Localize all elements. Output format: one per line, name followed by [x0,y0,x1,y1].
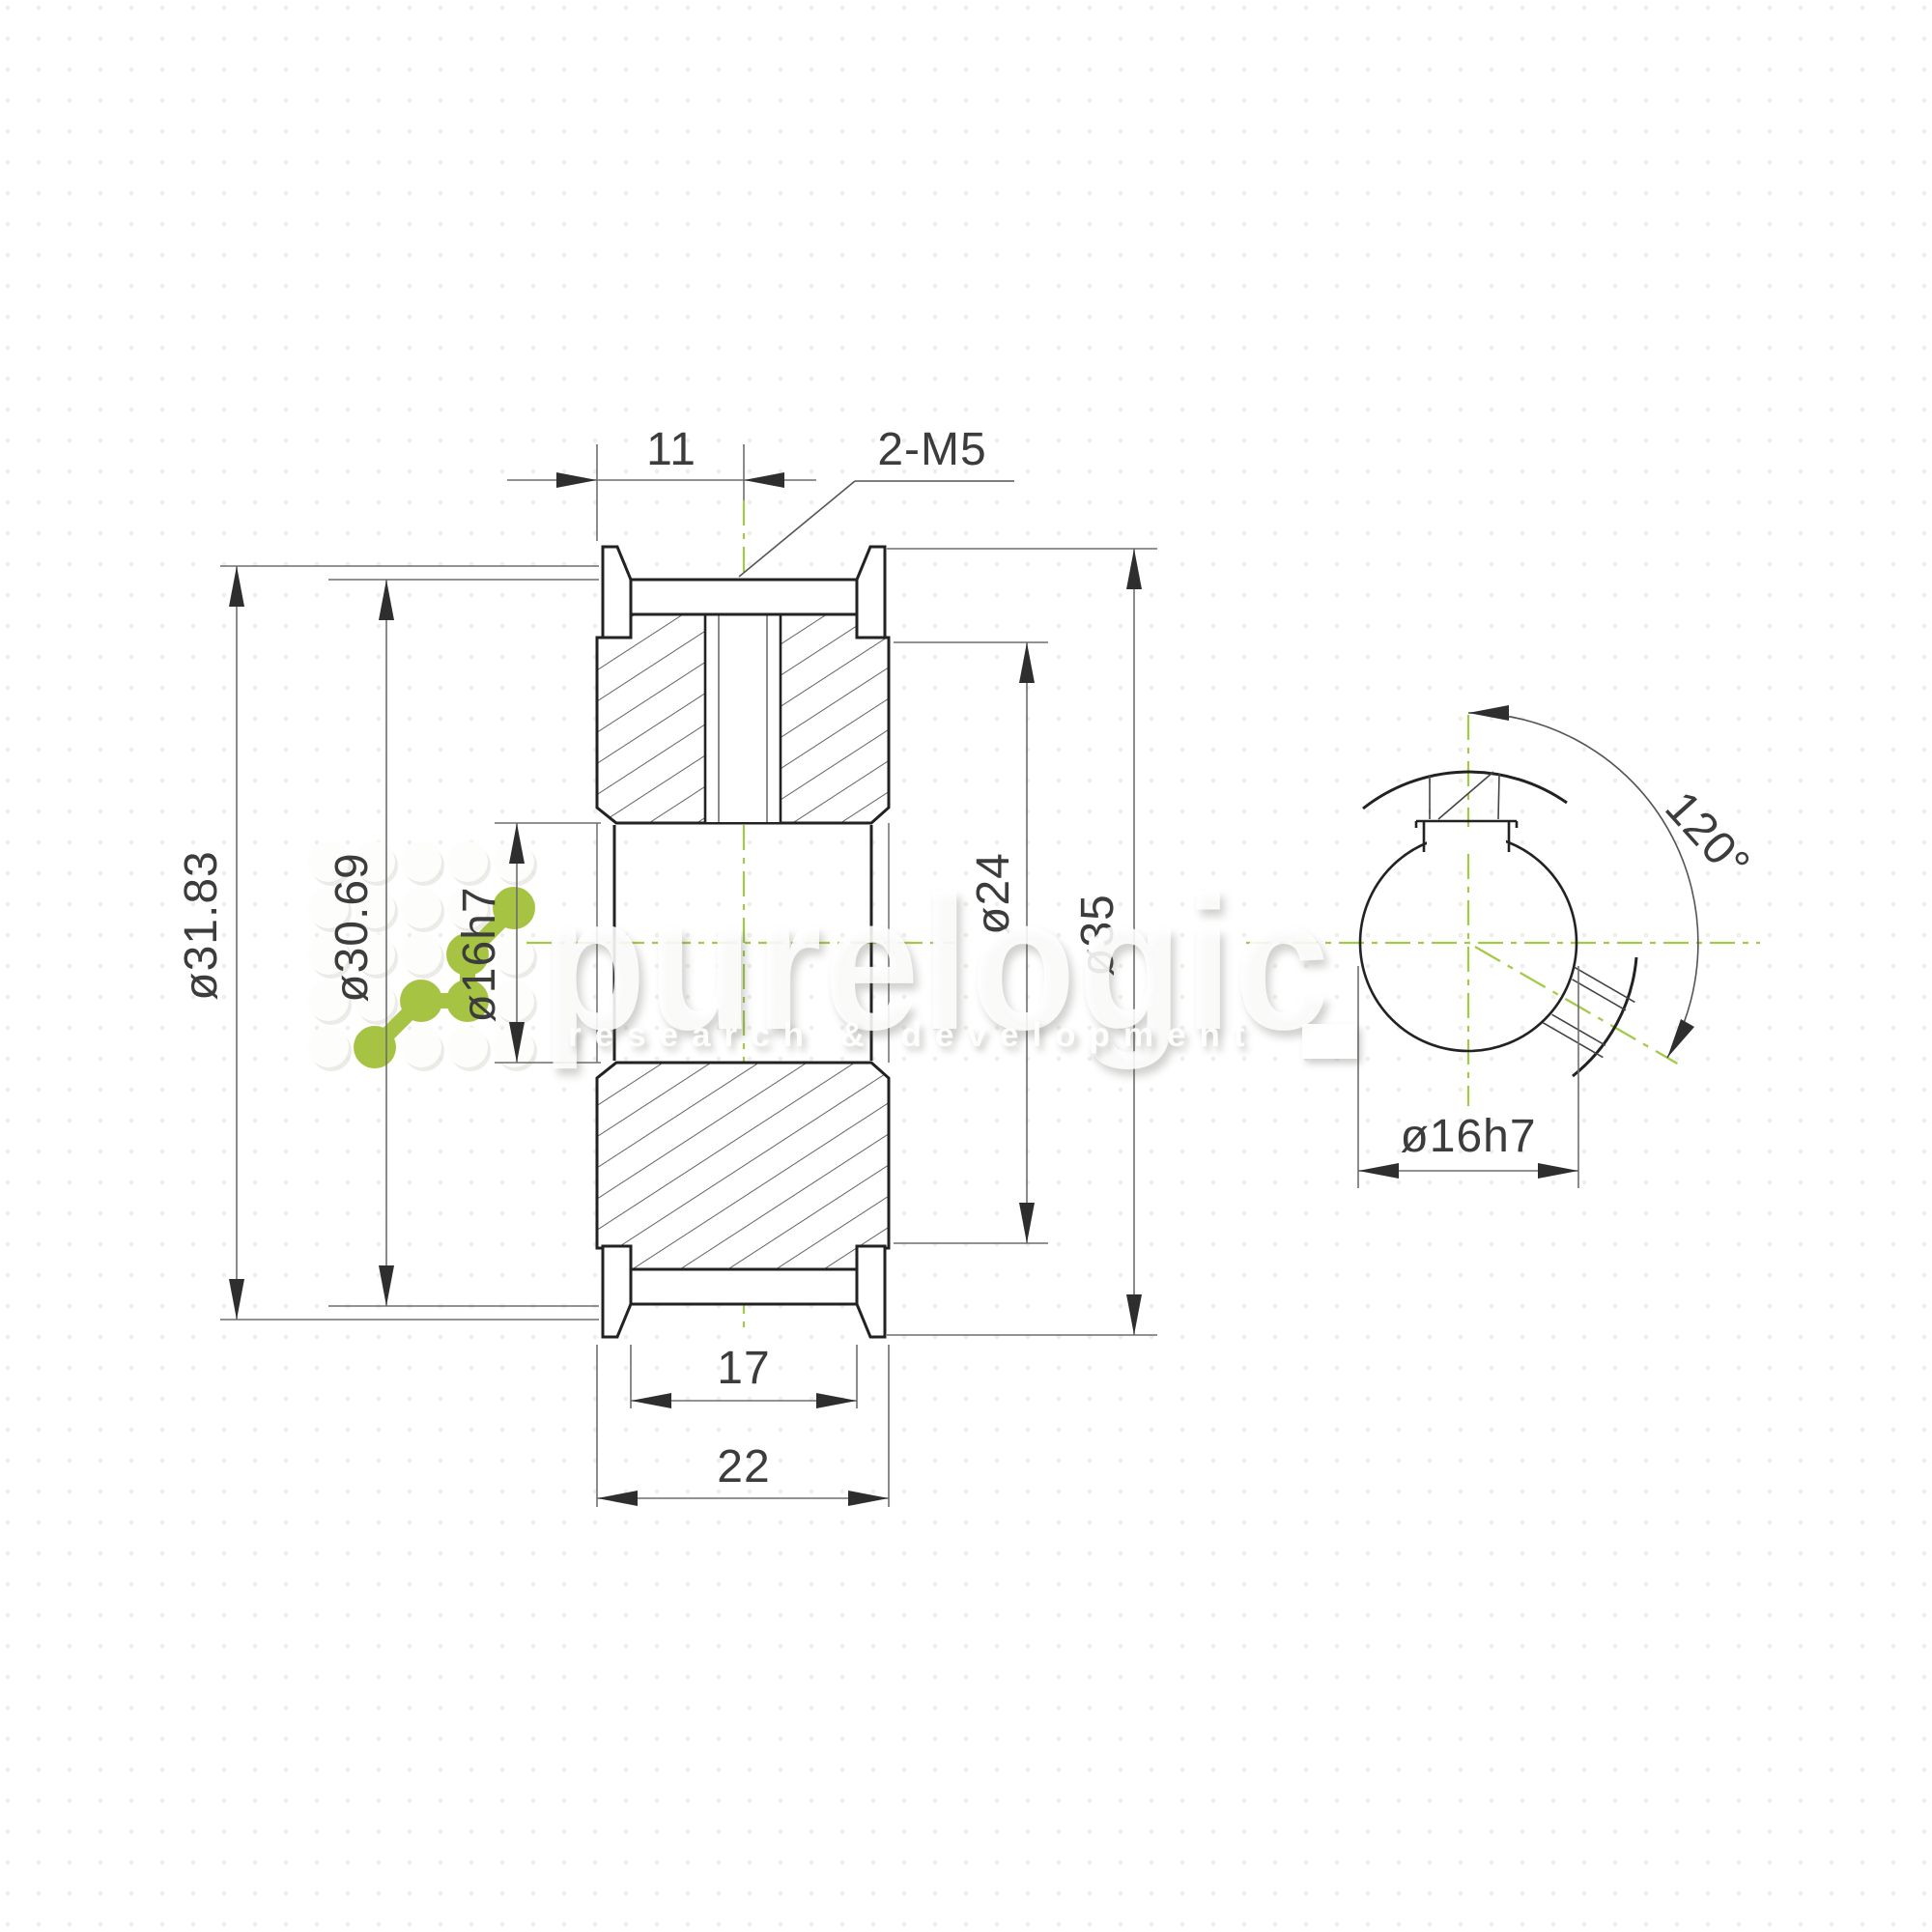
dim-flange-diameter: ø35 [1072,894,1123,977]
upper-rim-band [631,580,857,614]
dim-pitch-diameter: ø31.83 [176,850,227,1000]
lower-hub-section [597,1063,889,1269]
drawing-canvas: 11 2-M5 ø31.83 ø30.69 ø16h7 ø24 ø35 17 2… [0,0,1932,1932]
background-texture [0,0,1932,1932]
dim-outside-diameter: ø30.69 [327,852,378,1002]
dim-belt-width: 17 [717,1343,770,1394]
m5-tapped-hole-section [705,612,781,822]
pulley-drawing-svg: 11 2-M5 ø31.83 ø30.69 ø16h7 ø24 ø35 17 2… [0,0,1932,1932]
dim-bore-side: ø16h7 [1400,1111,1536,1162]
dim-total-width: 22 [717,1441,770,1492]
dim-2-m5: 2-M5 [877,424,986,475]
dim-bore-main: ø16h7 [454,886,505,1022]
dim-11: 11 [646,424,696,475]
dim-hub-diameter: ø24 [968,852,1019,935]
lower-rim-band [631,1269,857,1304]
